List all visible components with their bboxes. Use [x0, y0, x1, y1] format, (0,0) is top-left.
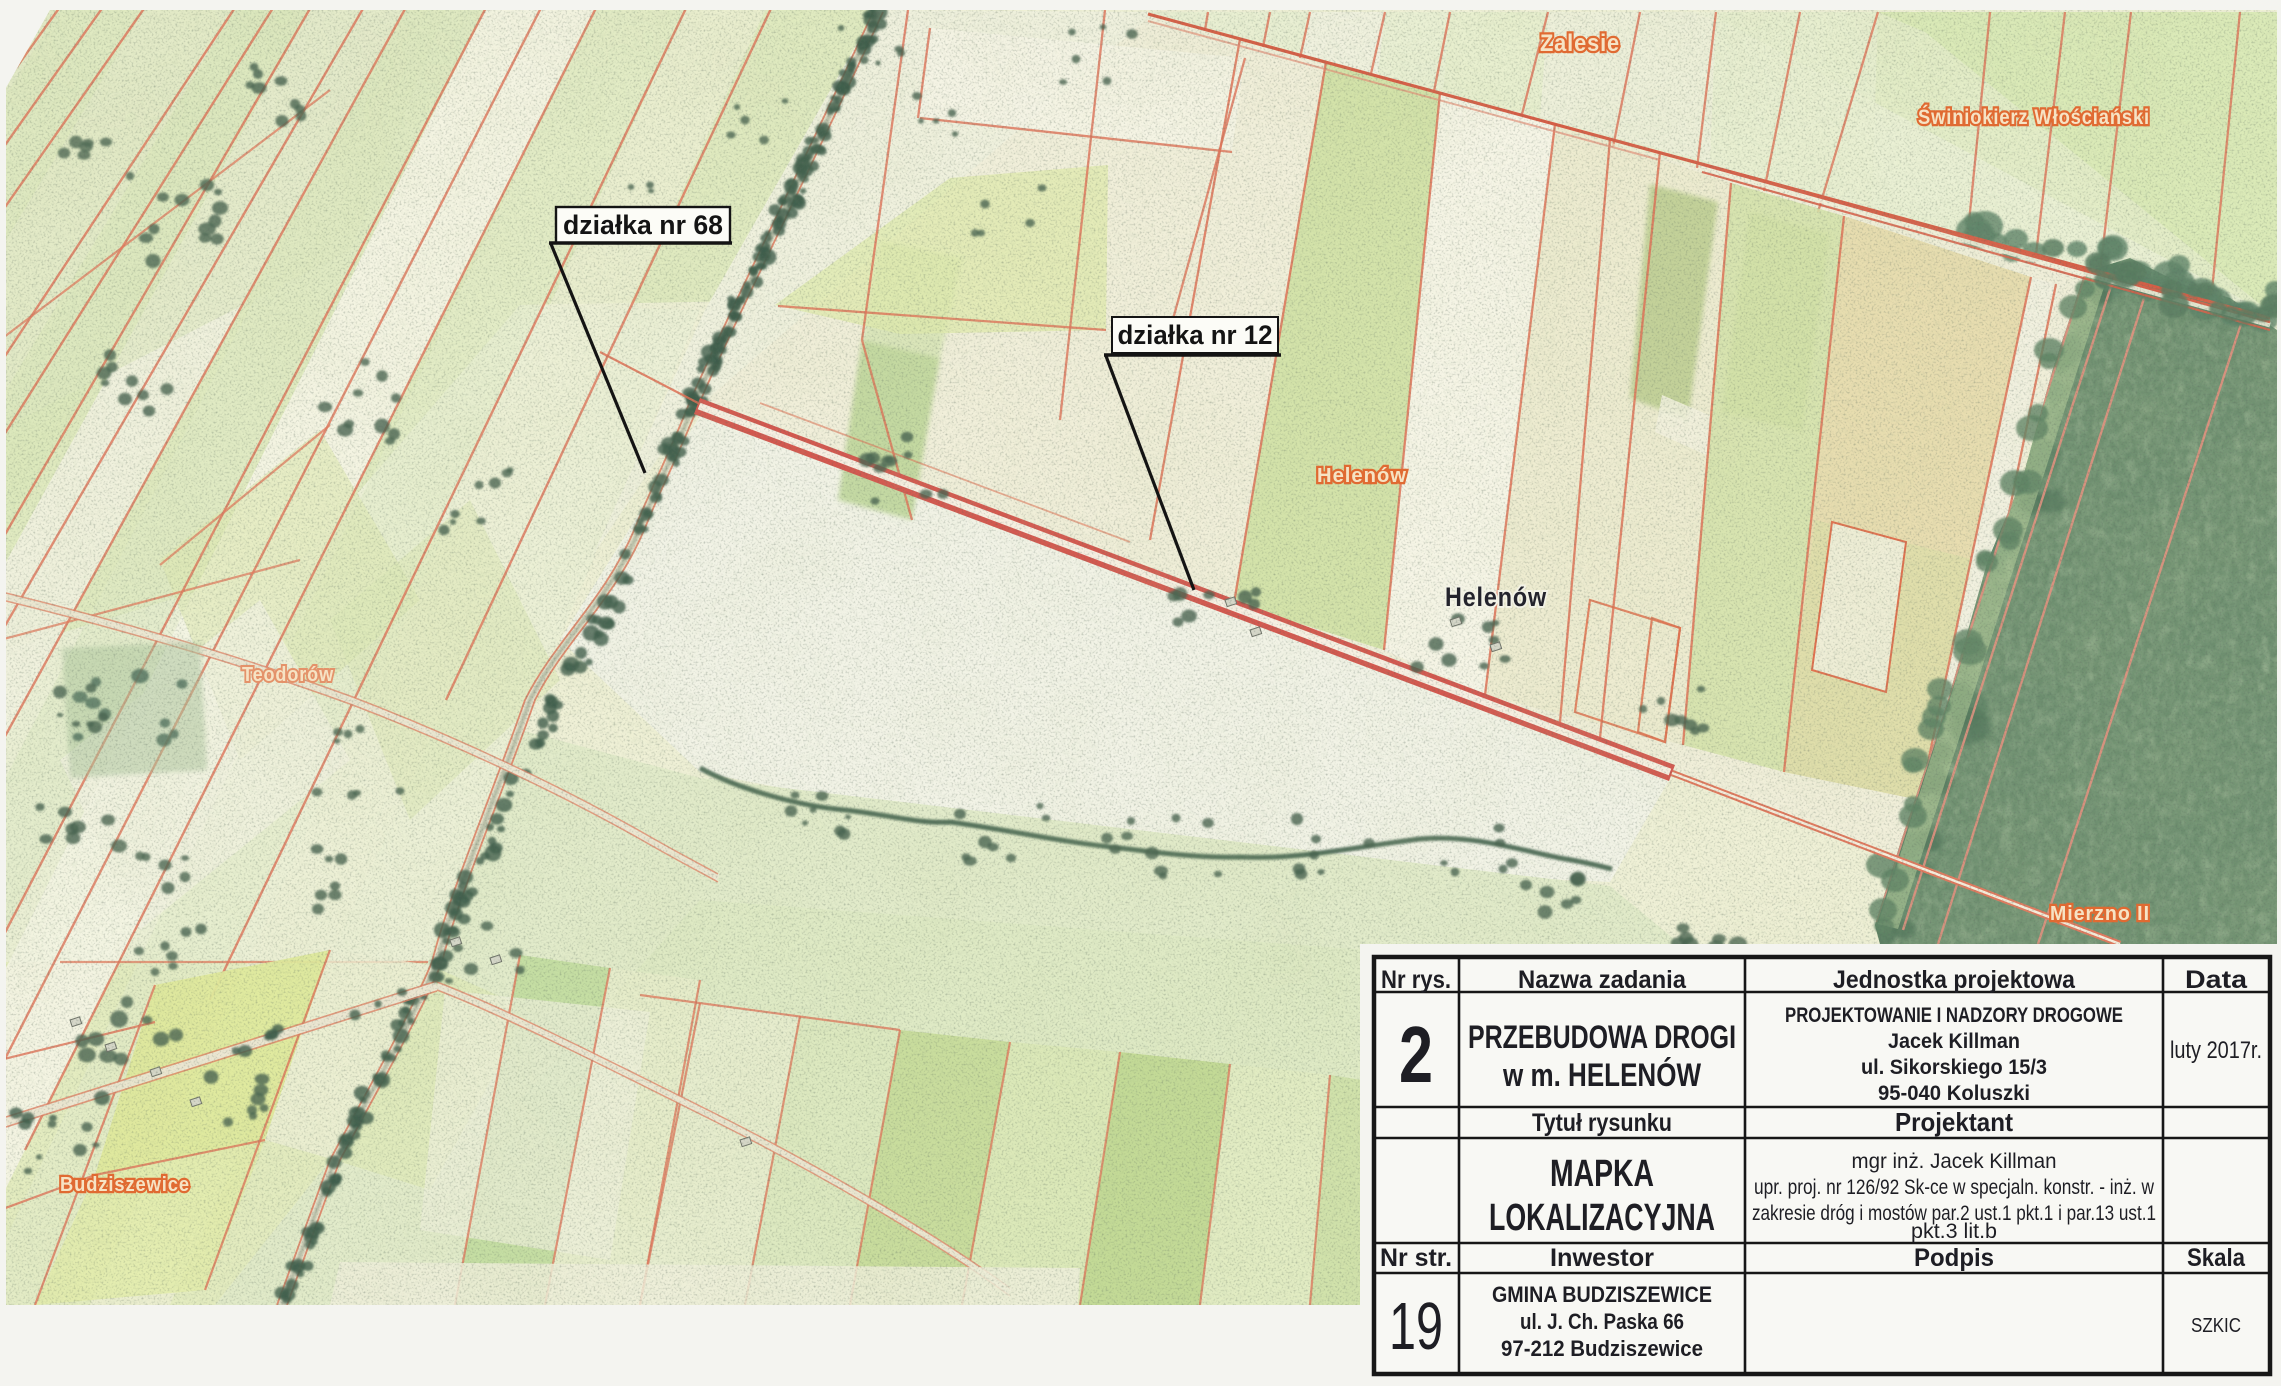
svg-text:Nr str.: Nr str.	[1380, 1244, 1452, 1272]
svg-text:PROJEKTOWANIE I NADZORY DROGOW: PROJEKTOWANIE I NADZORY DROGOWE	[1785, 1004, 2123, 1027]
svg-text:Helenów: Helenów	[1445, 582, 1547, 612]
svg-text:Helenów: Helenów	[1317, 465, 1407, 487]
svg-text:Inwestor: Inwestor	[1550, 1244, 1654, 1272]
svg-text:Skala: Skala	[2187, 1244, 2246, 1272]
svg-text:Mierzno II: Mierzno II	[2050, 903, 2150, 925]
svg-text:Projektant: Projektant	[1895, 1107, 2013, 1137]
svg-text:ul. Sikorskiego 15/3: ul. Sikorskiego 15/3	[1861, 1056, 2047, 1079]
svg-text:upr. proj. nr 126/92 Sk-ce w s: upr. proj. nr 126/92 Sk-ce w specjaln. k…	[1754, 1176, 2155, 1199]
svg-text:19: 19	[1389, 1289, 1443, 1364]
svg-text:Nazwa zadania: Nazwa zadania	[1518, 966, 1687, 994]
svg-text:Budziszewice: Budziszewice	[60, 1174, 190, 1196]
svg-text:Data: Data	[2185, 966, 2248, 994]
svg-text:Jednostka projektowa: Jednostka projektowa	[1833, 966, 2076, 994]
svg-text:95-040 Koluszki: 95-040 Koluszki	[1878, 1082, 2030, 1105]
svg-text:SZKIC: SZKIC	[2191, 1315, 2241, 1337]
svg-text:LOKALIZACYJNA: LOKALIZACYJNA	[1489, 1197, 1715, 1239]
svg-text:Tytuł rysunku: Tytuł rysunku	[1532, 1109, 1672, 1137]
svg-text:Nr rys.: Nr rys.	[1381, 966, 1451, 994]
svg-text:działka nr 68: działka nr 68	[563, 210, 723, 240]
svg-text:w m. HELENÓW: w m. HELENÓW	[1502, 1057, 1701, 1093]
svg-text:pkt.3 lit.b: pkt.3 lit.b	[1911, 1220, 1997, 1243]
svg-text:97-212 Budziszewice: 97-212 Budziszewice	[1501, 1336, 1703, 1361]
svg-text:2: 2	[1399, 1010, 1433, 1099]
svg-text:ul. J. Ch. Paska 66: ul. J. Ch. Paska 66	[1520, 1309, 1684, 1334]
svg-text:PRZEBUDOWA DROGI: PRZEBUDOWA DROGI	[1468, 1019, 1736, 1055]
svg-text:MAPKA: MAPKA	[1550, 1153, 1654, 1195]
svg-text:Świniokierz Włościański: Świniokierz Włościański	[1918, 105, 2150, 129]
svg-text:luty 2017r.: luty 2017r.	[2170, 1037, 2262, 1064]
svg-text:GMINA BUDZISZEWICE: GMINA BUDZISZEWICE	[1492, 1282, 1712, 1307]
svg-text:działka nr 12: działka nr 12	[1118, 320, 1273, 350]
svg-text:Jacek Killman: Jacek Killman	[1888, 1030, 2020, 1053]
svg-text:Podpis: Podpis	[1914, 1244, 1994, 1272]
svg-text:Teodorów: Teodorów	[242, 664, 334, 686]
svg-text:Zalesie: Zalesie	[1540, 30, 1620, 57]
svg-text:mgr inż. Jacek Killman: mgr inż. Jacek Killman	[1852, 1150, 2057, 1173]
